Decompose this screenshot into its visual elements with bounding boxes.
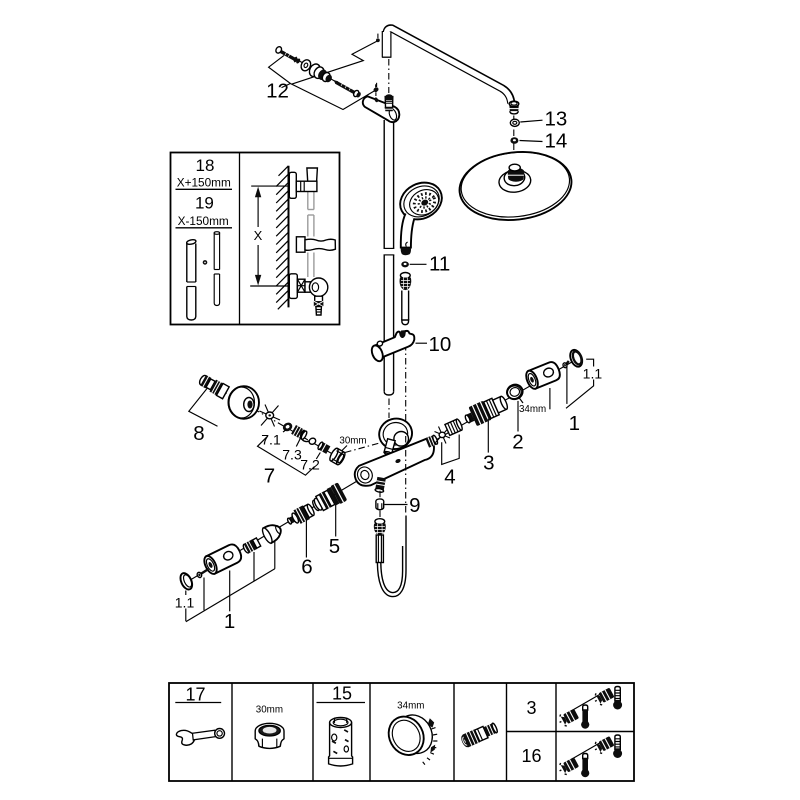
svg-text:4: 4 <box>444 466 455 489</box>
svg-text:7.1: 7.1 <box>261 432 281 448</box>
svg-text:7: 7 <box>264 465 275 488</box>
svg-text:1.1: 1.1 <box>583 366 603 382</box>
svg-text:17: 17 <box>185 684 205 704</box>
svg-text:X-150mm: X-150mm <box>178 214 229 228</box>
svg-text:30mm: 30mm <box>339 436 366 447</box>
svg-text:15: 15 <box>332 684 352 704</box>
svg-text:12: 12 <box>266 80 289 103</box>
svg-text:3: 3 <box>483 452 494 475</box>
svg-text:19: 19 <box>195 194 214 213</box>
svg-text:11: 11 <box>429 253 450 276</box>
svg-text:34mm: 34mm <box>519 404 546 415</box>
svg-text:1.1: 1.1 <box>175 595 195 611</box>
svg-text:9: 9 <box>409 494 420 517</box>
svg-text:18: 18 <box>196 156 215 175</box>
svg-text:1: 1 <box>224 610 235 633</box>
svg-text:8: 8 <box>193 422 204 445</box>
svg-text:2: 2 <box>512 431 523 454</box>
svg-text:X+150mm: X+150mm <box>177 175 231 189</box>
svg-text:6: 6 <box>301 556 312 579</box>
svg-text:1: 1 <box>569 412 580 435</box>
svg-text:7.3: 7.3 <box>282 447 302 463</box>
svg-text:14: 14 <box>545 130 568 153</box>
svg-text:10: 10 <box>429 333 452 356</box>
svg-text:34mm: 34mm <box>397 701 424 712</box>
svg-text:X: X <box>254 228 263 243</box>
svg-text:16: 16 <box>521 746 541 766</box>
svg-text:30mm: 30mm <box>256 704 283 715</box>
svg-text:5: 5 <box>329 535 340 558</box>
svg-text:3: 3 <box>526 698 536 718</box>
svg-text:13: 13 <box>545 108 568 131</box>
